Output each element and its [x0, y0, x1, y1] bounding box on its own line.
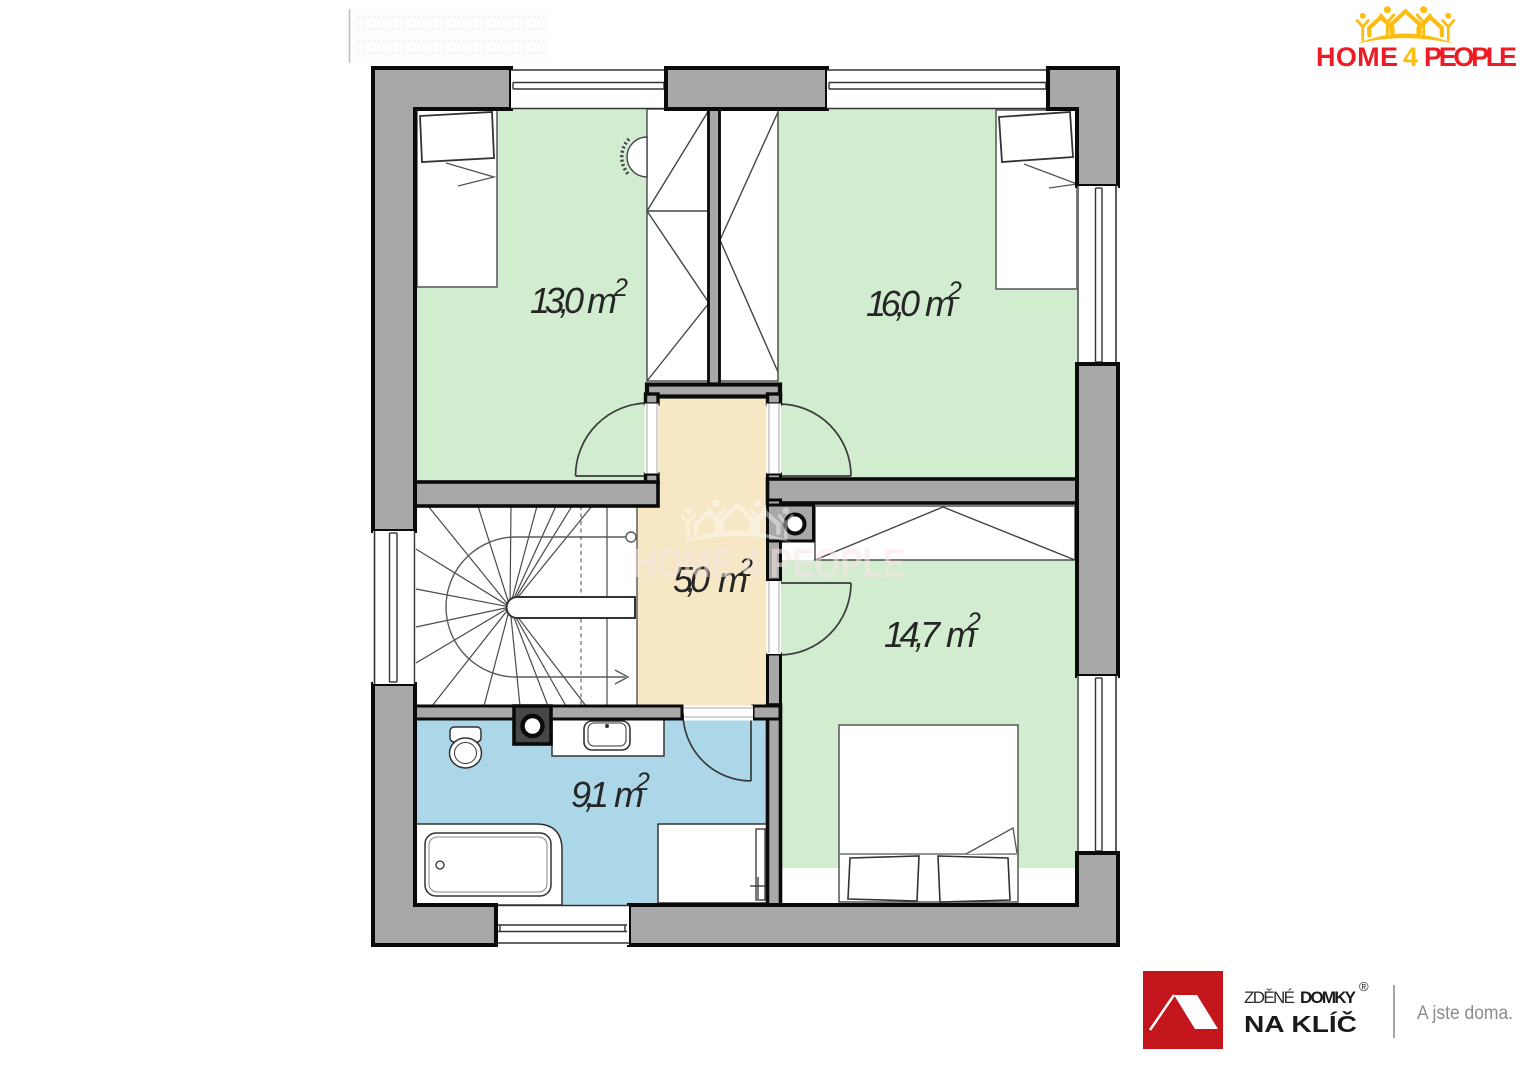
svg-text:m: m	[587, 280, 617, 321]
svg-text:2: 2	[947, 277, 962, 305]
svg-text:DOMKY: DOMKY	[1300, 988, 1357, 1007]
svg-text:HOME: HOME	[1316, 42, 1398, 72]
svg-text:PEOPLE: PEOPLE	[1424, 42, 1517, 72]
svg-text:HOME 4 PEOPLE: HOME 4 PEOPLE	[633, 540, 905, 586]
svg-text:2: 2	[613, 274, 628, 302]
svg-text:9,1: 9,1	[571, 774, 609, 815]
svg-text:A jste doma.: A jste doma.	[1417, 1003, 1513, 1024]
svg-text:ZDĚNÉ: ZDĚNÉ	[1244, 988, 1295, 1007]
svg-text:4: 4	[1403, 42, 1418, 72]
svg-text:16,0: 16,0	[866, 283, 920, 324]
svg-text:2: 2	[635, 768, 650, 796]
svg-text:13,0: 13,0	[530, 280, 584, 321]
svg-text:®: ®	[1359, 979, 1369, 994]
svg-text:2: 2	[966, 608, 981, 636]
svg-text:14,7: 14,7	[884, 614, 942, 655]
svg-text:NA KLÍČ: NA KLÍČ	[1244, 1010, 1357, 1037]
